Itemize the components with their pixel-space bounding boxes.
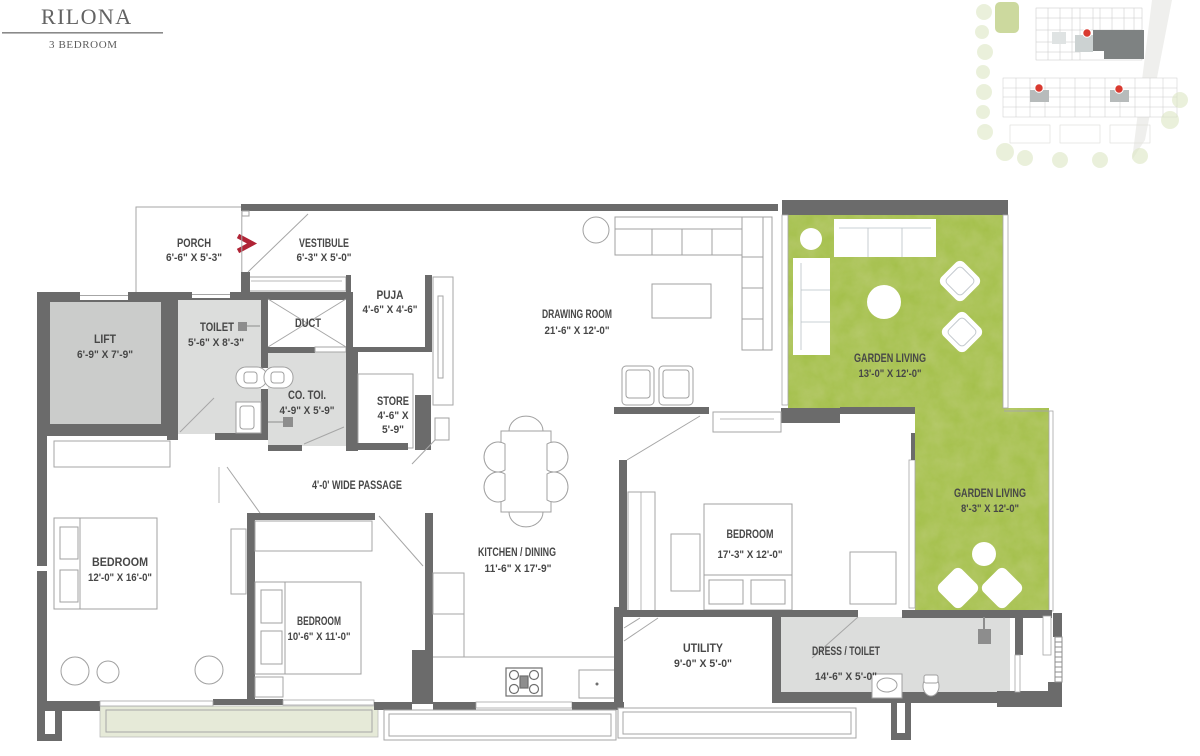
svg-text:VESTIBULE: VESTIBULE	[299, 236, 349, 250]
svg-text:TOILET: TOILET	[200, 320, 235, 334]
svg-text:6'-3" X 5'-0": 6'-3" X 5'-0"	[297, 252, 352, 264]
svg-text:5'-6" X 8'-3": 5'-6" X 8'-3"	[188, 337, 244, 349]
svg-text:PORCH: PORCH	[177, 236, 211, 250]
svg-text:6'-9" X 7'-9": 6'-9" X 7'-9"	[77, 349, 133, 361]
svg-text:PUJA: PUJA	[377, 288, 404, 302]
svg-text:5'-9": 5'-9"	[382, 424, 404, 436]
svg-text:UTILITY: UTILITY	[683, 641, 723, 655]
svg-text:10'-6" X 11'-0": 10'-6" X 11'-0"	[288, 631, 351, 643]
svg-text:GARDEN LIVING: GARDEN LIVING	[854, 351, 926, 365]
svg-text:BEDROOM: BEDROOM	[727, 527, 774, 541]
svg-text:DUCT: DUCT	[295, 316, 322, 330]
svg-text:BEDROOM: BEDROOM	[92, 555, 148, 569]
svg-text:3 BEDROOM: 3 BEDROOM	[49, 39, 118, 51]
svg-text:RILONA: RILONA	[41, 4, 133, 29]
svg-text:21'-6" X 12'-0": 21'-6" X 12'-0"	[545, 325, 610, 337]
svg-text:13'-0" X 12'-0": 13'-0" X 12'-0"	[859, 368, 922, 380]
svg-text:DRAWING ROOM: DRAWING ROOM	[542, 307, 612, 321]
svg-text:LIFT: LIFT	[94, 332, 117, 346]
svg-text:14'-6" X 5'-0": 14'-6" X 5'-0"	[815, 671, 877, 683]
svg-text:KITCHEN / DINING: KITCHEN / DINING	[478, 545, 556, 559]
svg-text:11'-6" X 17'-9": 11'-6" X 17'-9"	[485, 563, 552, 575]
svg-text:4'-9" X 5'-9": 4'-9" X 5'-9"	[280, 405, 335, 417]
svg-text:4'-0' WIDE PASSAGE: 4'-0' WIDE PASSAGE	[312, 478, 402, 492]
svg-text:9'-0" X 5'-0": 9'-0" X 5'-0"	[674, 658, 732, 670]
svg-text:BEDROOM: BEDROOM	[297, 614, 341, 628]
svg-text:4'-6" X 4'-6": 4'-6" X 4'-6"	[363, 304, 418, 316]
svg-text:STORE: STORE	[377, 394, 409, 408]
svg-text:CO. TOI.: CO. TOI.	[288, 388, 326, 402]
svg-text:6'-6" X 5'-3": 6'-6" X 5'-3"	[166, 252, 222, 264]
svg-text:8'-3" X 12'-0": 8'-3" X 12'-0"	[961, 503, 1019, 515]
svg-text:GARDEN LIVING: GARDEN LIVING	[954, 486, 1026, 500]
svg-text:4'-6" X: 4'-6" X	[378, 410, 410, 422]
svg-text:DRESS / TOILET: DRESS / TOILET	[812, 644, 880, 658]
svg-text:12'-0" X 16'-0": 12'-0" X 16'-0"	[88, 572, 152, 584]
svg-text:17'-3" X 12'-0": 17'-3" X 12'-0"	[718, 549, 783, 561]
